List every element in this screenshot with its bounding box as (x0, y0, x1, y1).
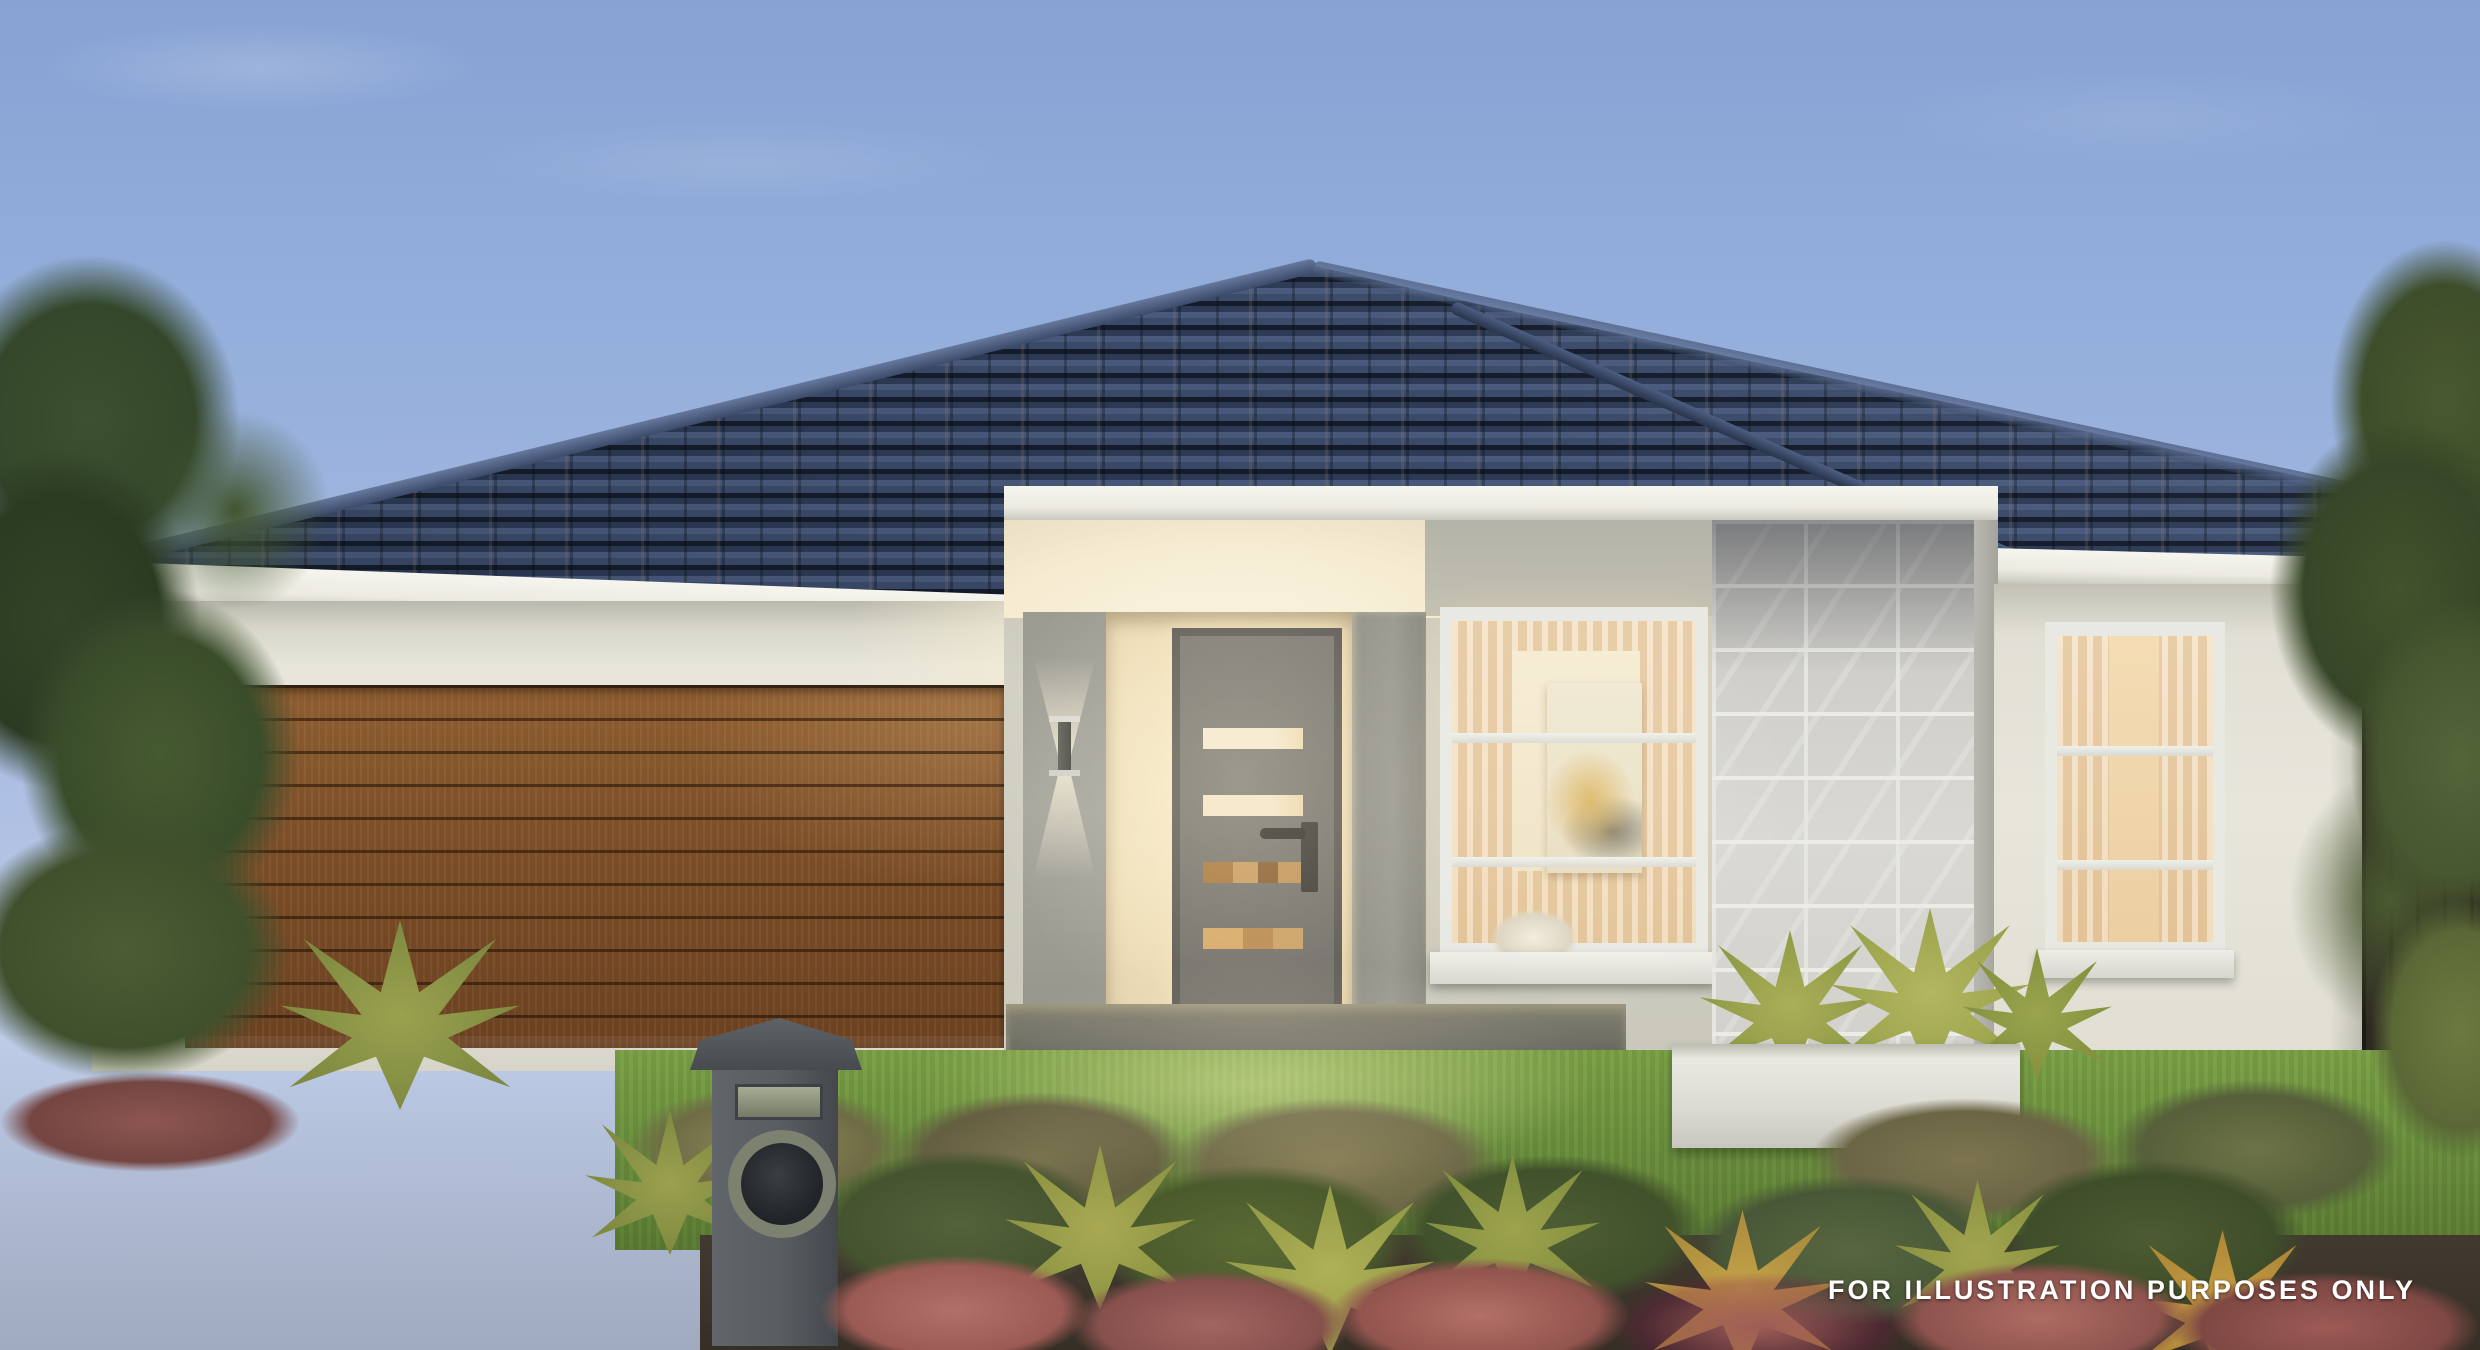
mailbox-slot (735, 1084, 823, 1120)
gutter-fascia-entry (1004, 486, 1998, 524)
red-groundcover (0, 1072, 300, 1172)
cloud (40, 22, 480, 112)
right-window-sill (2036, 950, 2234, 978)
mailbox-paper-hole (728, 1130, 836, 1238)
disclaimer-watermark: FOR ILLUSTRATION PURPOSES ONLY (1828, 1275, 2416, 1306)
tree-left-canopy (140, 410, 330, 610)
window-mullion (2057, 746, 2213, 756)
garage-door (185, 685, 1005, 1048)
window-light-glow (1380, 600, 1800, 1020)
house-render-image: FOR ILLUSTRATION PURPOSES ONLY (0, 0, 2480, 1350)
right-window-glass (2057, 636, 2213, 942)
cloud (1880, 70, 2400, 166)
cloud (470, 120, 1010, 204)
right-window-bright-gap (2109, 636, 2159, 942)
right-window-frame (2045, 622, 2225, 956)
window-mullion (2057, 860, 2213, 870)
